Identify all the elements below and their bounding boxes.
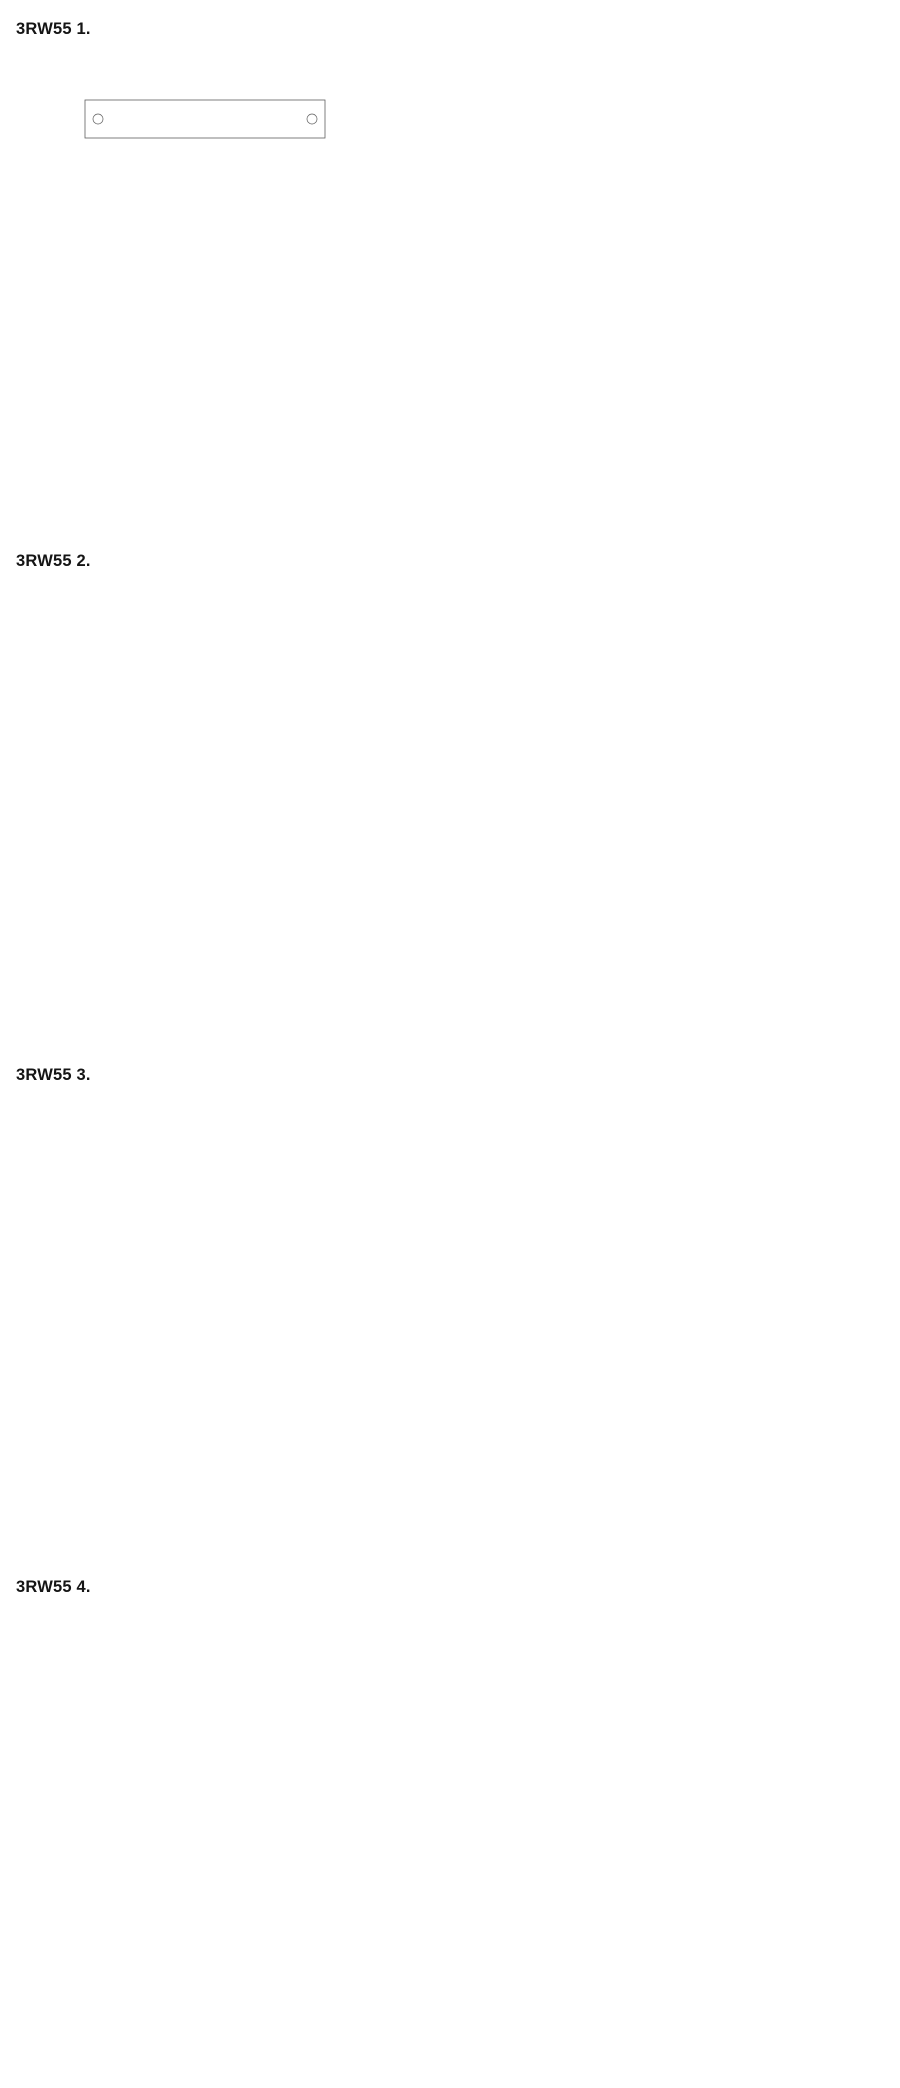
dimension-drawing-page: 3RW55 1. 3RW55 2. 3RW55 3. 3RW55 4. bbox=[0, 0, 900, 2088]
figure-1 bbox=[85, 100, 325, 138]
figure-1-front-view bbox=[85, 100, 325, 138]
dimension-drawings-canvas bbox=[0, 0, 900, 2088]
